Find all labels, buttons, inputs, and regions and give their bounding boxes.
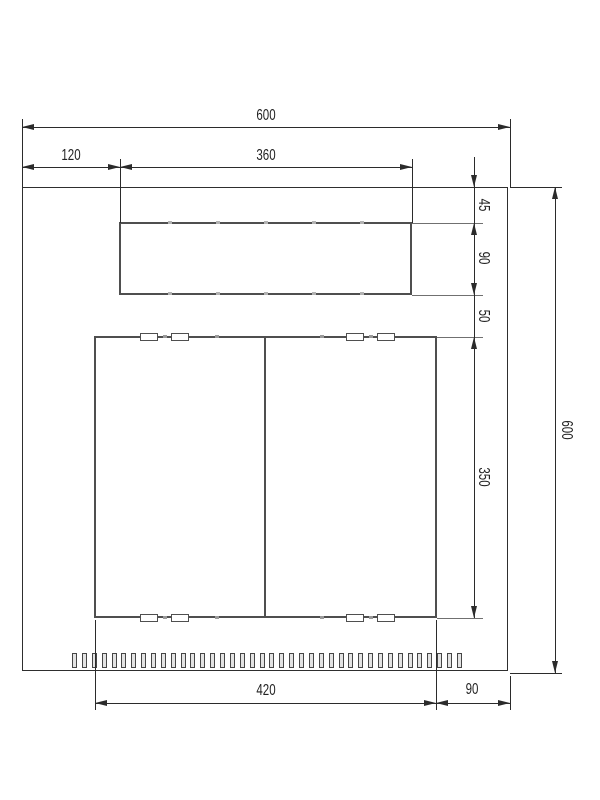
extension-line	[437, 618, 483, 619]
vent-slot	[289, 653, 294, 668]
vent-slot	[220, 653, 225, 668]
mount-slot	[171, 614, 189, 622]
extension-line	[412, 295, 483, 296]
weld-tick	[168, 292, 172, 295]
vent-slot	[427, 653, 432, 668]
extension-line	[436, 620, 437, 710]
dim-arrow	[436, 700, 448, 706]
vent-slot	[102, 653, 107, 668]
mount-slot	[377, 614, 395, 622]
dim-line-top-offsets	[22, 167, 412, 168]
dim-label-right-total: 600	[557, 408, 575, 451]
dim-label-left-offset: 120	[49, 147, 92, 165]
extension-line	[412, 159, 413, 223]
vent-slot	[398, 653, 403, 668]
dim-label-cutout-height: 90	[474, 236, 492, 279]
dim-arrow	[22, 164, 34, 170]
vent-slot	[131, 653, 136, 668]
vent-slot	[437, 653, 442, 668]
vent-slot	[319, 653, 324, 668]
dim-arrow	[498, 124, 510, 130]
vent-slot	[250, 653, 255, 668]
vent-slot	[190, 653, 195, 668]
vent-slot	[161, 653, 166, 668]
edge-tick	[320, 616, 324, 619]
extension-line	[510, 673, 562, 674]
dim-label-gap: 50	[474, 294, 492, 337]
extension-line	[510, 119, 511, 187]
vent-slot	[329, 653, 334, 668]
dim-line-right-total	[555, 187, 556, 673]
weld-tick	[312, 292, 316, 295]
edge-tick	[163, 335, 167, 338]
vent-slot	[339, 653, 344, 668]
vent-slot	[210, 653, 215, 668]
vent-slot	[230, 653, 235, 668]
vent-slot	[269, 653, 274, 668]
dim-label-bottom-margin: 90	[450, 681, 493, 699]
extension-line	[510, 676, 511, 710]
vent-slot	[299, 653, 304, 668]
mount-slot	[171, 333, 189, 341]
edge-tick	[369, 335, 373, 338]
dim-arrow	[498, 700, 510, 706]
edge-tick	[215, 616, 219, 619]
dim-arrow	[400, 164, 412, 170]
edge-tick	[320, 335, 324, 338]
vent-slot	[121, 653, 126, 668]
dim-line-top-total	[22, 127, 510, 128]
dim-label-top-total: 600	[244, 107, 287, 125]
vent-slot	[447, 653, 452, 668]
weld-tick	[360, 221, 364, 224]
mount-slot	[140, 333, 158, 341]
dim-arrow	[108, 164, 120, 170]
mount-slot	[346, 614, 364, 622]
vent-slot	[200, 653, 205, 668]
dim-label-door-width: 420	[244, 682, 287, 700]
weld-tick	[216, 221, 220, 224]
dim-arrow	[424, 700, 436, 706]
weld-tick	[264, 221, 268, 224]
vent-slot	[348, 653, 353, 668]
vent-slot	[408, 653, 413, 668]
dim-arrow	[471, 283, 477, 295]
dim-arrow	[120, 164, 132, 170]
vent-slot	[388, 653, 393, 668]
edge-tick	[163, 616, 167, 619]
dim-arrow	[22, 124, 34, 130]
weld-tick	[168, 221, 172, 224]
vent-slot	[368, 653, 373, 668]
vent-slot	[457, 653, 462, 668]
weld-tick	[216, 292, 220, 295]
dim-label-cutout-width: 360	[244, 147, 287, 165]
vent-slot	[358, 653, 363, 668]
vent-slot	[279, 653, 284, 668]
dim-arrow	[471, 337, 477, 349]
edge-tick	[369, 616, 373, 619]
dim-arrow	[95, 700, 107, 706]
vent-slot	[171, 653, 176, 668]
door-divider-line	[264, 338, 266, 616]
extension-line	[95, 620, 96, 710]
vent-slot	[82, 653, 87, 668]
vent-slot	[378, 653, 383, 668]
technical-drawing-sheet: 600 120 360 45 90 50 350 600 420 90	[0, 0, 600, 800]
vent-slot	[417, 653, 422, 668]
dim-label-top-margin: 45	[474, 183, 492, 226]
vent-slot	[112, 653, 117, 668]
vent-slot	[240, 653, 245, 668]
weld-tick	[312, 221, 316, 224]
vent-slot	[151, 653, 156, 668]
vent-slot	[72, 653, 77, 668]
dim-arrow	[552, 661, 558, 673]
mount-slot	[377, 333, 395, 341]
dim-arrow	[471, 606, 477, 618]
vent-slot	[309, 653, 314, 668]
dim-label-door-height: 350	[474, 455, 492, 498]
vent-slot	[260, 653, 265, 668]
weld-tick	[360, 292, 364, 295]
mount-slot	[346, 333, 364, 341]
vent-slot	[141, 653, 146, 668]
dim-arrow	[552, 187, 558, 199]
edge-tick	[215, 335, 219, 338]
top-cutout	[119, 222, 412, 295]
weld-tick	[264, 292, 268, 295]
mount-slot	[140, 614, 158, 622]
vent-slot	[181, 653, 186, 668]
